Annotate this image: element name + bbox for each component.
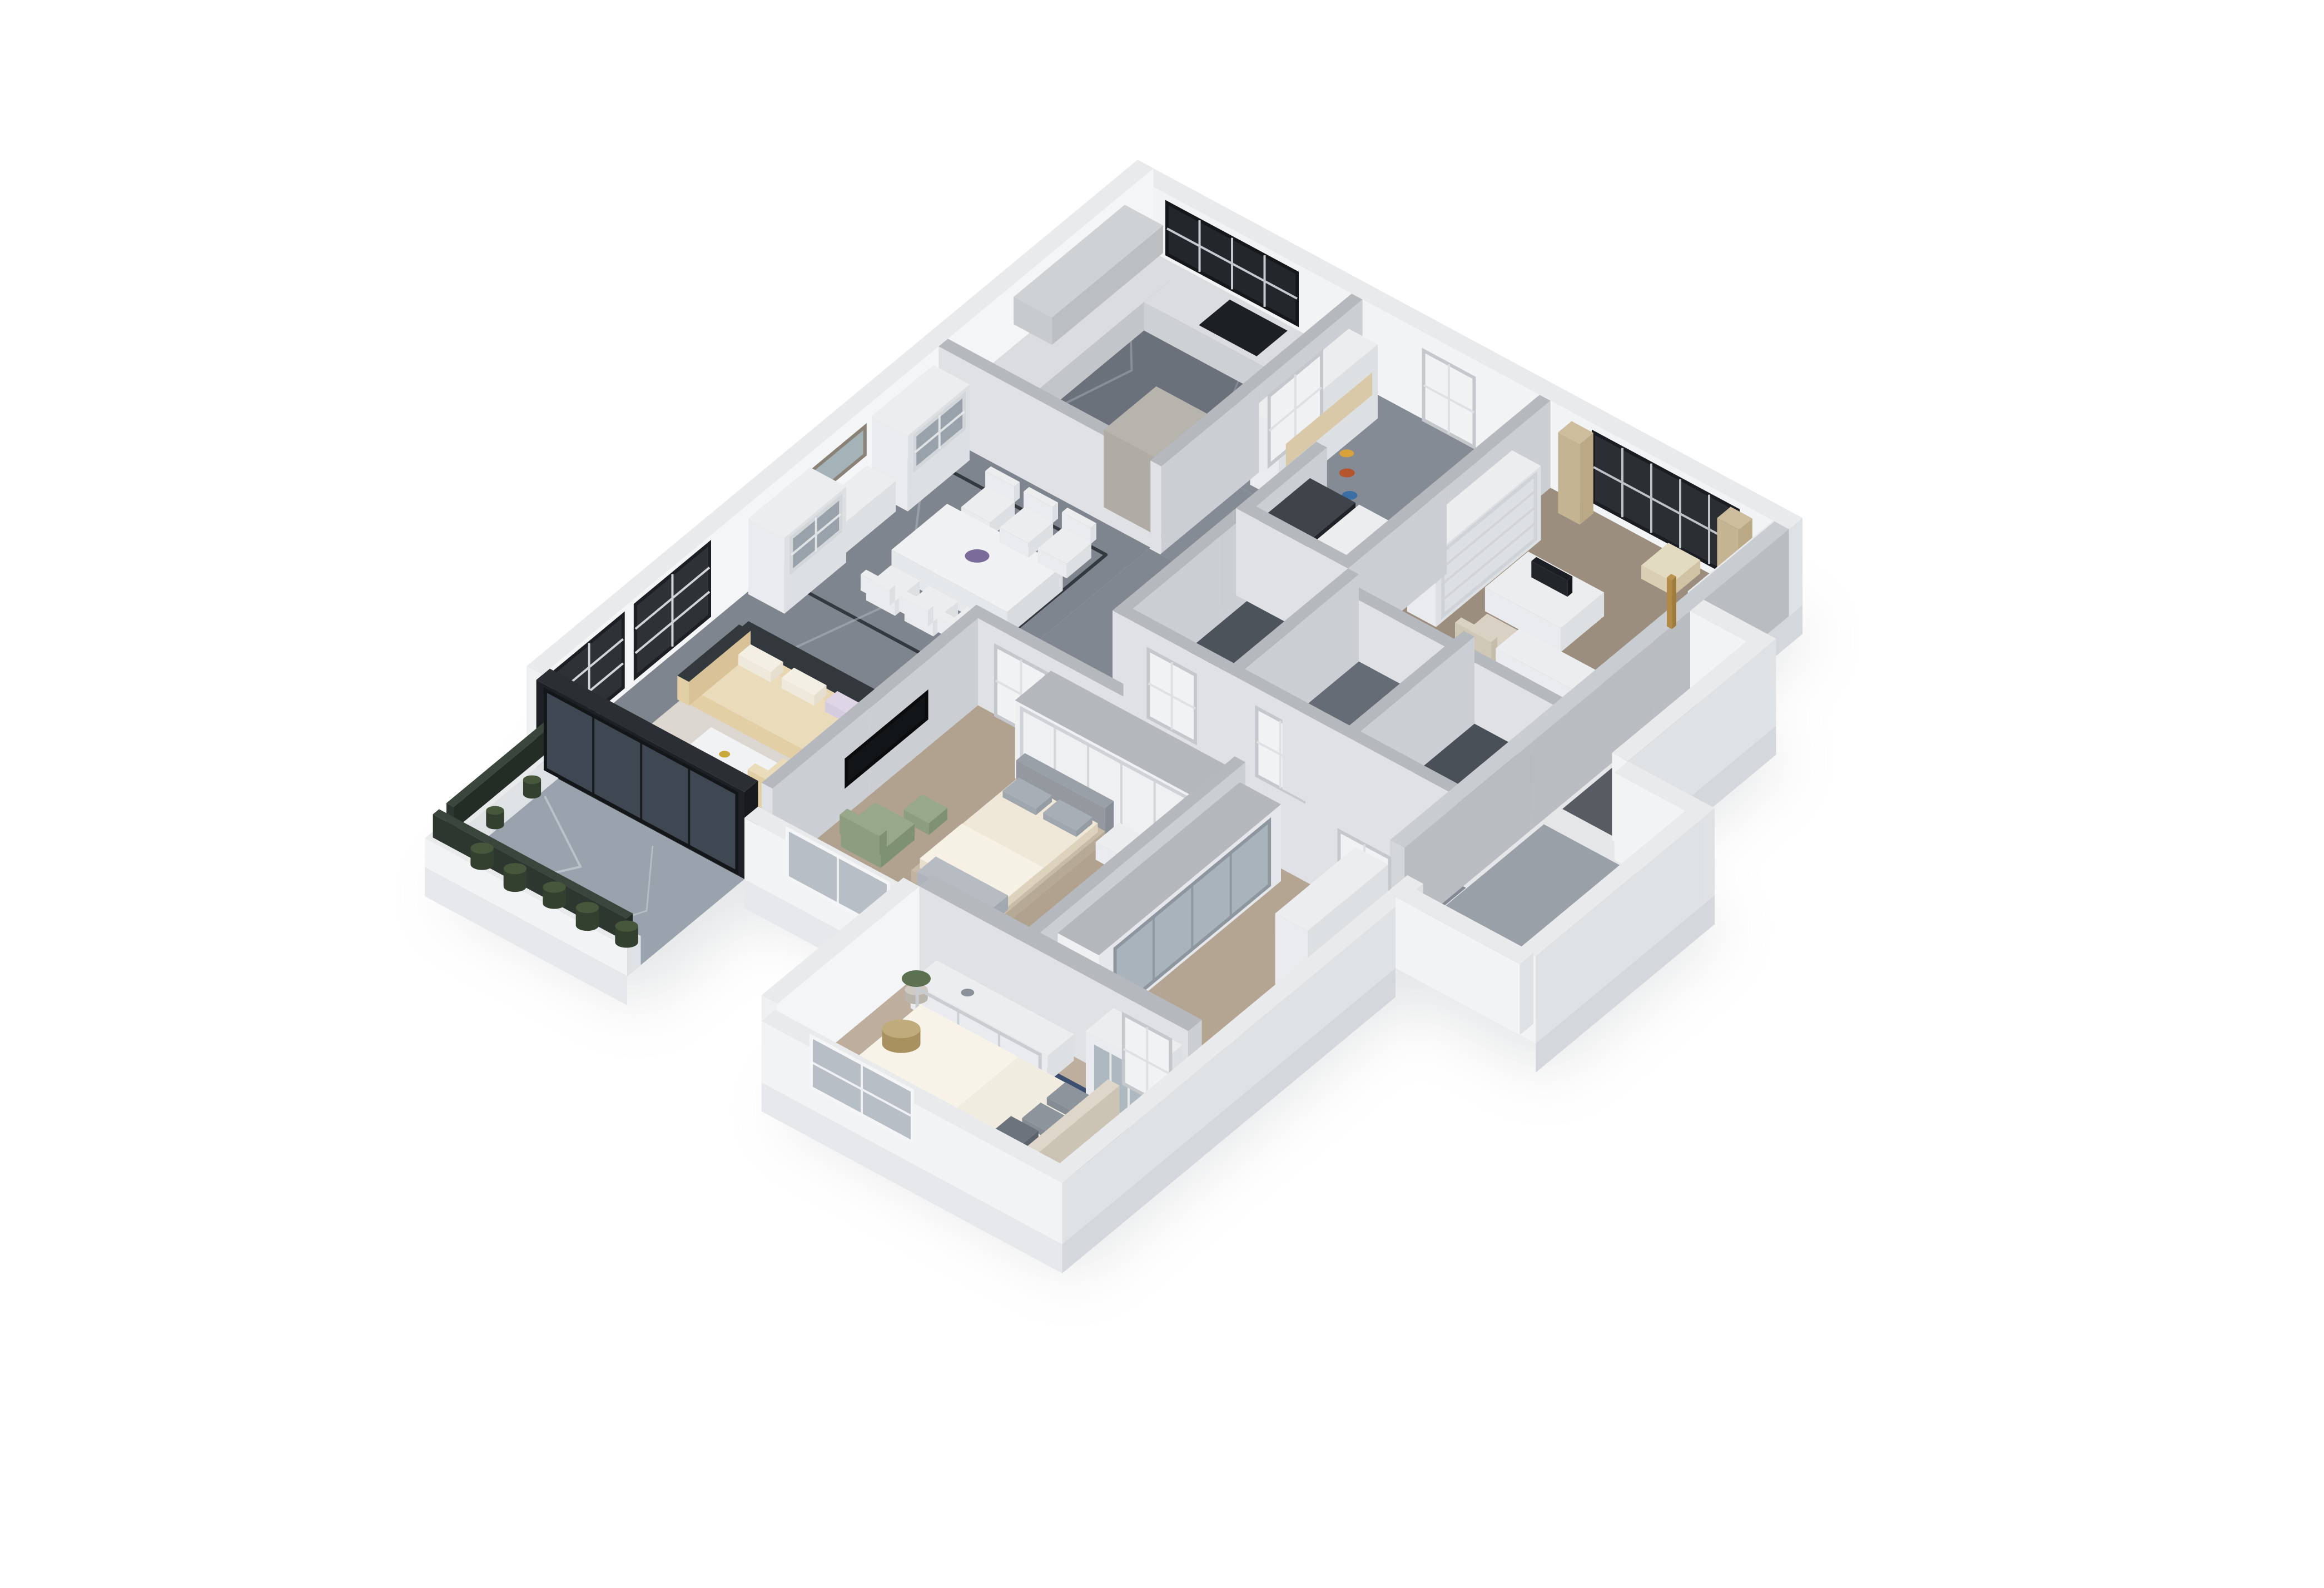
floor-lamp-pole — [1672, 577, 1676, 629]
shoes-pair — [1339, 449, 1354, 457]
balcony-plant-side — [523, 775, 541, 784]
floor-plan-3d-render — [0, 0, 2324, 1588]
wall-utility-b-south — [1520, 953, 1533, 1035]
balcony-plant — [504, 863, 527, 874]
wall-utility-a-north — [1762, 639, 1776, 737]
wall-utility-b-north — [1701, 808, 1715, 906]
plant-foliage — [902, 970, 931, 987]
floor-plan-page — [0, 0, 2324, 1588]
balcony-plant — [615, 920, 638, 931]
balcony-plant — [470, 842, 493, 853]
wall-kitchen-corridor — [1150, 460, 1161, 553]
wall-ne-facade — [1789, 518, 1802, 616]
balcony-plant-side — [486, 806, 504, 815]
floor-lamp-pole — [1667, 578, 1672, 629]
wall-master-sw-facade — [1062, 1172, 1076, 1244]
study-curtain-left — [1580, 433, 1593, 524]
study-curtain-left — [1558, 433, 1580, 525]
balcony-plant — [543, 881, 565, 892]
balcony-plant — [576, 902, 599, 913]
gold-pouf — [882, 1020, 921, 1039]
shoes-pair — [1339, 469, 1355, 478]
coffee-table-decor — [719, 751, 730, 757]
table-flower-centerpiece — [965, 549, 990, 563]
dresser-decor — [961, 989, 974, 996]
